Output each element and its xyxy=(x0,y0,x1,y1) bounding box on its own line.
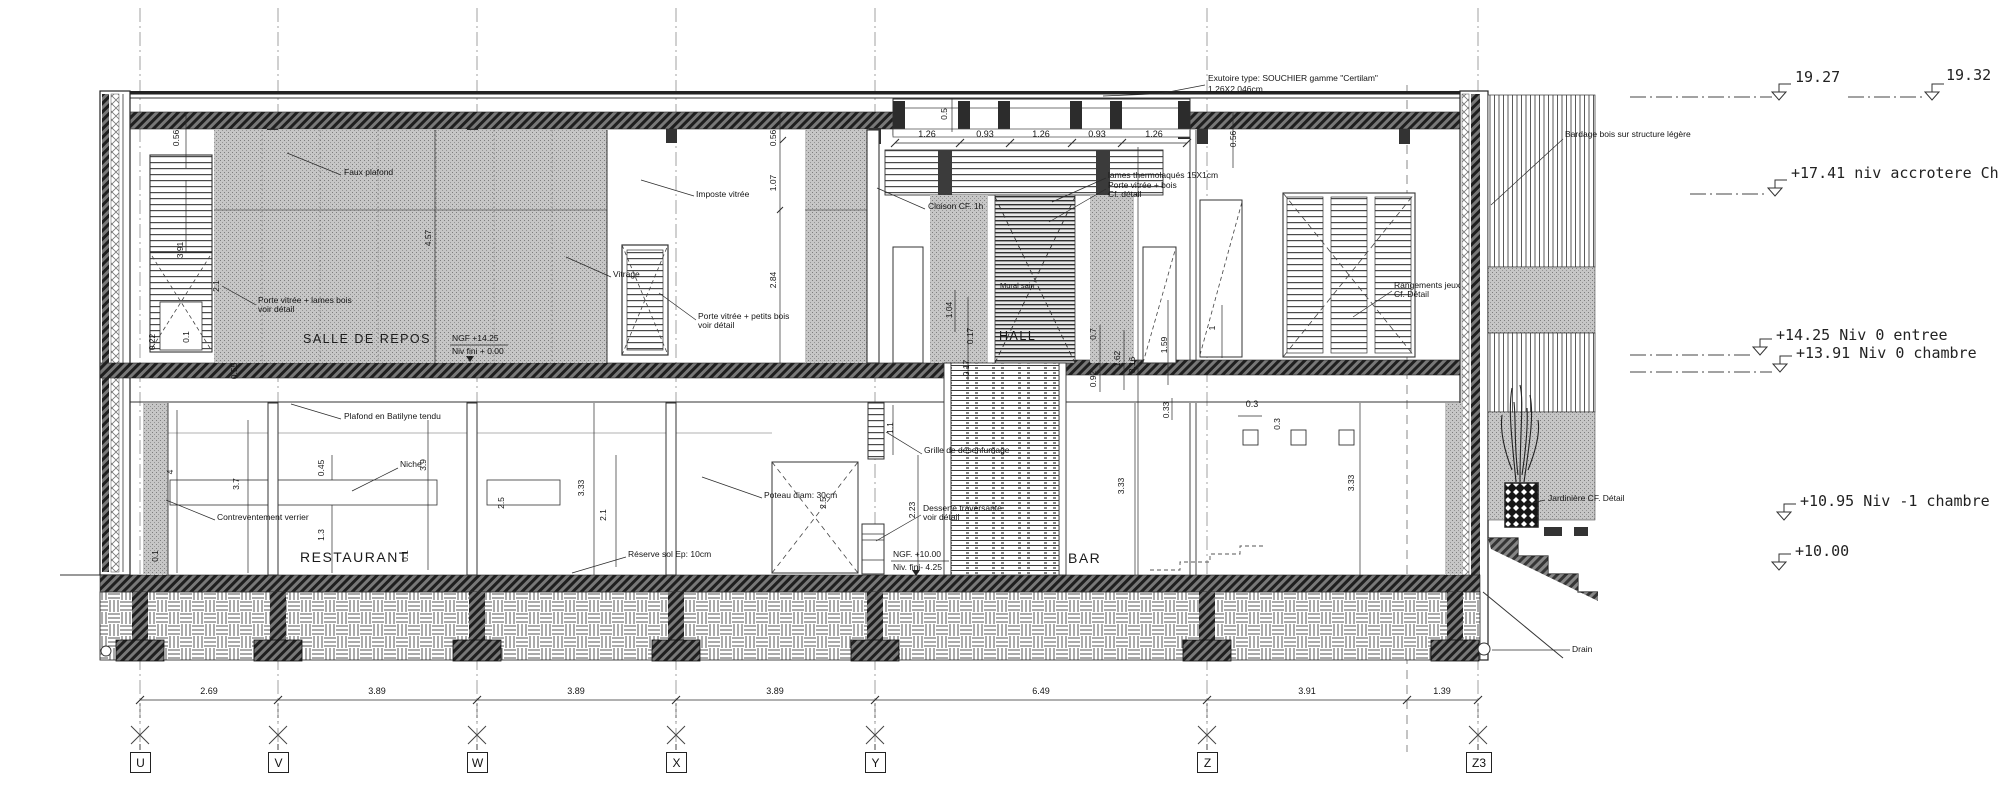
dim-label: 1.26 xyxy=(1145,129,1163,139)
dim-label: 2.5 xyxy=(818,497,828,509)
annotation-exutoire-line1: Exutoire type: SOUCHIER gamme "Certilam" xyxy=(1208,74,1378,83)
right-exterior xyxy=(1478,95,1598,658)
dim-label: 0.1 xyxy=(400,550,410,562)
level-19-27: 19.27 xyxy=(1795,68,1840,86)
grid-bubble-w: W xyxy=(467,752,488,773)
dim-label: 0.33 xyxy=(1161,402,1171,419)
annotation-porte-petits-line2: voir détail xyxy=(698,321,734,330)
annotation-porte-lames-line2: voir détail xyxy=(258,305,294,314)
right-wall xyxy=(1460,91,1488,660)
annotation-plafond-batilyne: Plafond en Batilyne tendu xyxy=(344,412,441,421)
foundation xyxy=(100,592,1480,661)
dim-label: 0.3 xyxy=(1246,399,1259,409)
dim-label: 0.17 xyxy=(961,360,971,377)
annotation-desserte-line2: voir détail xyxy=(923,513,959,522)
annotation-exutoire-line2: 1.26X2.046cm xyxy=(1208,85,1263,94)
dim-label: 3.7 xyxy=(231,478,241,490)
dim-label: 3.91 xyxy=(1298,686,1316,696)
dim-label: 1.3 xyxy=(316,529,326,541)
grid-bubble-y: Y xyxy=(865,752,886,773)
grid-bubble-x: X xyxy=(666,752,687,773)
dim-label: 0.56 xyxy=(171,130,181,147)
drain-pipe xyxy=(1478,643,1490,655)
annotation-jardiniere: Jardinière CF. Détail xyxy=(1548,494,1625,503)
room-label-restaurant: RESTAURANT xyxy=(300,549,409,565)
annotation-reserve-sol: Réserve sol Ep: 10cm xyxy=(628,550,711,559)
annotation-contreventement: Contreventement verrier xyxy=(217,513,309,522)
annotation-drain: Drain xyxy=(1572,645,1592,654)
dim-label: 2.84 xyxy=(768,272,778,289)
level-13-91: +13.91 Niv 0 chambre xyxy=(1796,344,1977,362)
room-label-bar: BAR xyxy=(1068,550,1101,566)
annotation-bardage: Bardage bois sur structure légère xyxy=(1565,130,1691,139)
dim-label: 2.1 xyxy=(211,280,221,292)
ngf-upper-line2: Niv fini + 0.00 xyxy=(452,347,504,356)
dim-label: 0.1 xyxy=(150,550,160,562)
ngf-lower-line1: NGF. +10.00 xyxy=(893,550,941,559)
dim-label: 2.5 xyxy=(496,497,506,509)
mid-slab xyxy=(100,360,1460,433)
annotation-faux-plafond: Faux plafond xyxy=(344,168,393,177)
level-10-00: +10.00 xyxy=(1795,542,1849,560)
annotation-vitrage: Vitrage xyxy=(613,270,640,279)
architectural-section-drawing: SALLE DE REPOS HALL RESTAURANT BAR 19.27… xyxy=(0,0,2000,789)
dim-label: 3.33 xyxy=(576,480,586,497)
dim-label: 1.39 xyxy=(1433,686,1451,696)
dim-label: 0.55 xyxy=(229,363,239,380)
annotation-rangements-line2: Cf. Détail xyxy=(1394,290,1429,299)
dim-label: 1.26 xyxy=(918,129,936,139)
dim-label: 0.56 xyxy=(1228,131,1238,148)
room-label-salle-de-repos: SALLE DE REPOS xyxy=(303,332,431,346)
dim-label: 1 xyxy=(1207,326,1217,331)
dim-label: 0.93 xyxy=(1088,129,1106,139)
dim-label: 2.23 xyxy=(907,502,917,519)
left-wall xyxy=(100,91,130,575)
dim-label: 0.93 xyxy=(976,129,994,139)
dim-label: 6.49 xyxy=(1032,686,1050,696)
level-17-41: +17.41 niv accrotere Ch. xyxy=(1791,164,2000,182)
dim-label: 0.45 xyxy=(316,460,326,477)
dim-label: 0.22 xyxy=(147,334,157,351)
grid-bubble-u: U xyxy=(130,752,151,773)
dim-label: 2.69 xyxy=(200,686,218,696)
dim-label: 8.16 xyxy=(1127,357,1137,374)
dim-label: 1.04 xyxy=(944,302,954,319)
dim-label: 1.26 xyxy=(1032,129,1050,139)
room-label-hall: HALL xyxy=(999,329,1036,343)
annotation-porte-bois-line2: Cf. détail xyxy=(1108,190,1142,199)
annotation-cloison-cf: Cloison CF. 1h xyxy=(928,202,983,211)
level-10-95: +10.95 Niv -1 chambre xyxy=(1800,492,1990,510)
grid-bubble-z3: Z3 xyxy=(1466,752,1492,773)
dim-label: 1.1 xyxy=(885,422,895,434)
dim-label: 0.17 xyxy=(965,328,975,345)
dim-label: 2.1 xyxy=(598,509,608,521)
dim-label: 3.89 xyxy=(567,686,585,696)
upper-floor xyxy=(150,130,1415,363)
dim-label: 3.89 xyxy=(766,686,784,696)
annotation-imposte-vitree: Imposte vitrée xyxy=(696,190,749,199)
grid-bubble-v: V xyxy=(268,752,289,773)
dim-label: 1.62 xyxy=(1112,351,1122,368)
dim-label: 3.9 xyxy=(418,459,428,471)
dim-label: 3.33 xyxy=(1116,478,1126,495)
annotation-grille-desenfumage: Grille de désenfumage xyxy=(924,446,1010,455)
ngf-upper-line1: NGF +14.25 xyxy=(452,334,499,343)
level-14-25: +14.25 Niv 0 entree xyxy=(1776,326,1948,344)
section-cut-icons xyxy=(131,726,1487,750)
dim-label: 4.57 xyxy=(423,230,433,247)
dim-label: 0.3 xyxy=(1272,418,1282,430)
dim-label: 0.1 xyxy=(181,331,191,343)
dim-label: 0.56 xyxy=(768,130,778,147)
dim-label: 3.91 xyxy=(175,242,185,259)
section-linework xyxy=(0,0,2000,789)
dim-label: 1.07 xyxy=(768,175,778,192)
annotation-mural-sain: Mural sain xyxy=(1000,281,1035,290)
lower-floor xyxy=(143,363,1463,575)
level-19-32: 19.32 xyxy=(1946,66,1991,84)
jardiniere-box xyxy=(1505,483,1538,527)
dim-label: 0.5 xyxy=(939,108,949,120)
grid-bubble-z: Z xyxy=(1197,752,1218,773)
ground-slab xyxy=(60,575,1480,592)
dim-label: 3.89 xyxy=(368,686,386,696)
ngf-lower-line2: Niv. fini- 4.25 xyxy=(893,563,942,572)
dim-label: 4 xyxy=(165,470,175,475)
dim-label: 1.59 xyxy=(1159,337,1169,354)
dim-label: 3.33 xyxy=(1346,475,1356,492)
annotation-lames-thermolaques: lames thermolaqués 15X1cm xyxy=(1108,171,1218,180)
dim-label: 0.92 xyxy=(1088,371,1098,388)
dim-label: 0.7 xyxy=(1088,328,1098,340)
grid-markers xyxy=(131,703,1487,750)
